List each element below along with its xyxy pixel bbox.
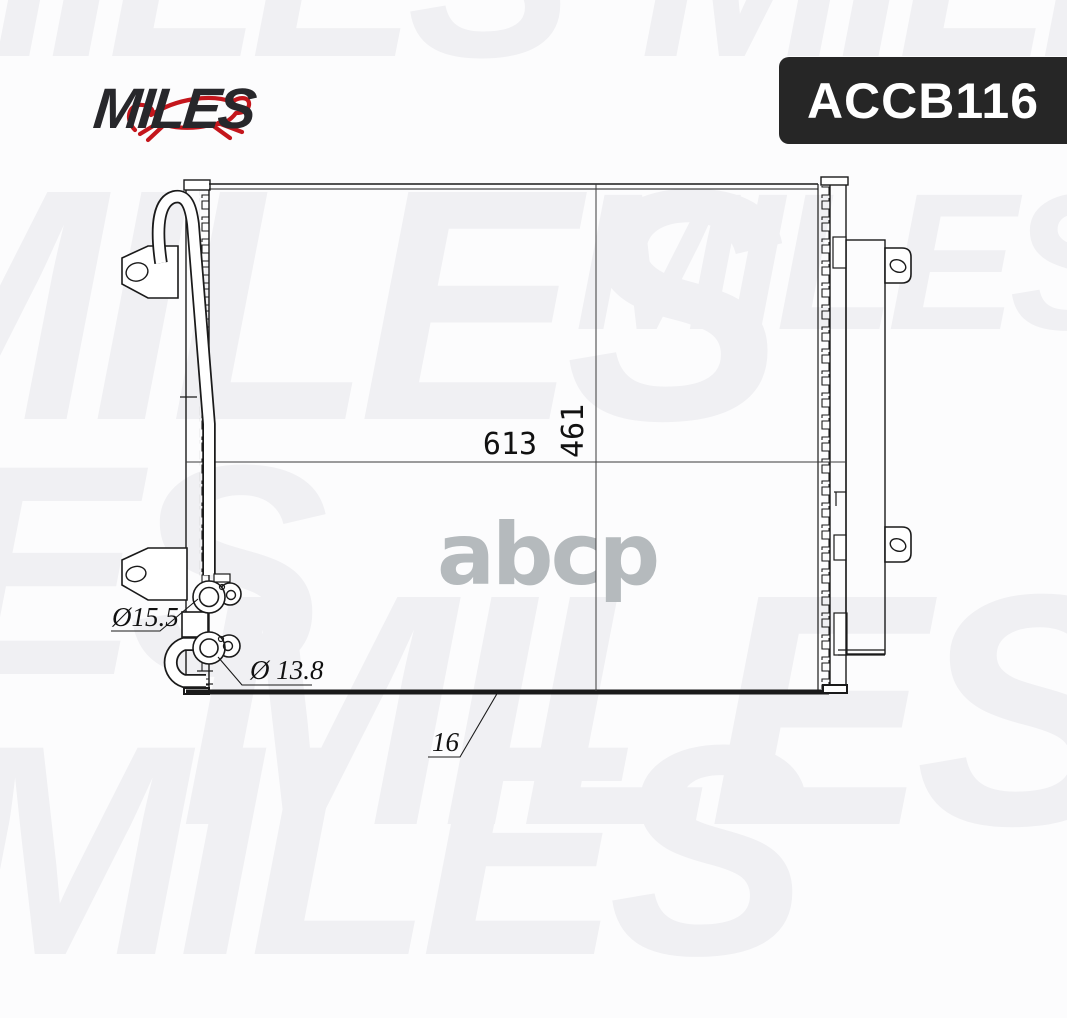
right-mount-bracket-top (885, 248, 911, 283)
port-bottom-diameter-label: Ø 13.8 (249, 655, 324, 685)
part-number-badge: ACCB116 (779, 57, 1067, 144)
receiver-drier (838, 240, 885, 655)
part-number: ACCB116 (807, 72, 1039, 130)
left-mount-bracket-bottom (122, 548, 187, 600)
core-thickness-label: 16 (432, 727, 460, 757)
port-top-diameter-label: Ø15.5 (111, 602, 179, 632)
dimension-height-label: 461 (556, 404, 591, 458)
dimension-width-label: 613 (483, 427, 537, 462)
left-mount-bracket-top (122, 246, 178, 298)
right-mount-bracket-bottom (885, 527, 911, 562)
miles-logo-text: MILES (91, 81, 256, 138)
